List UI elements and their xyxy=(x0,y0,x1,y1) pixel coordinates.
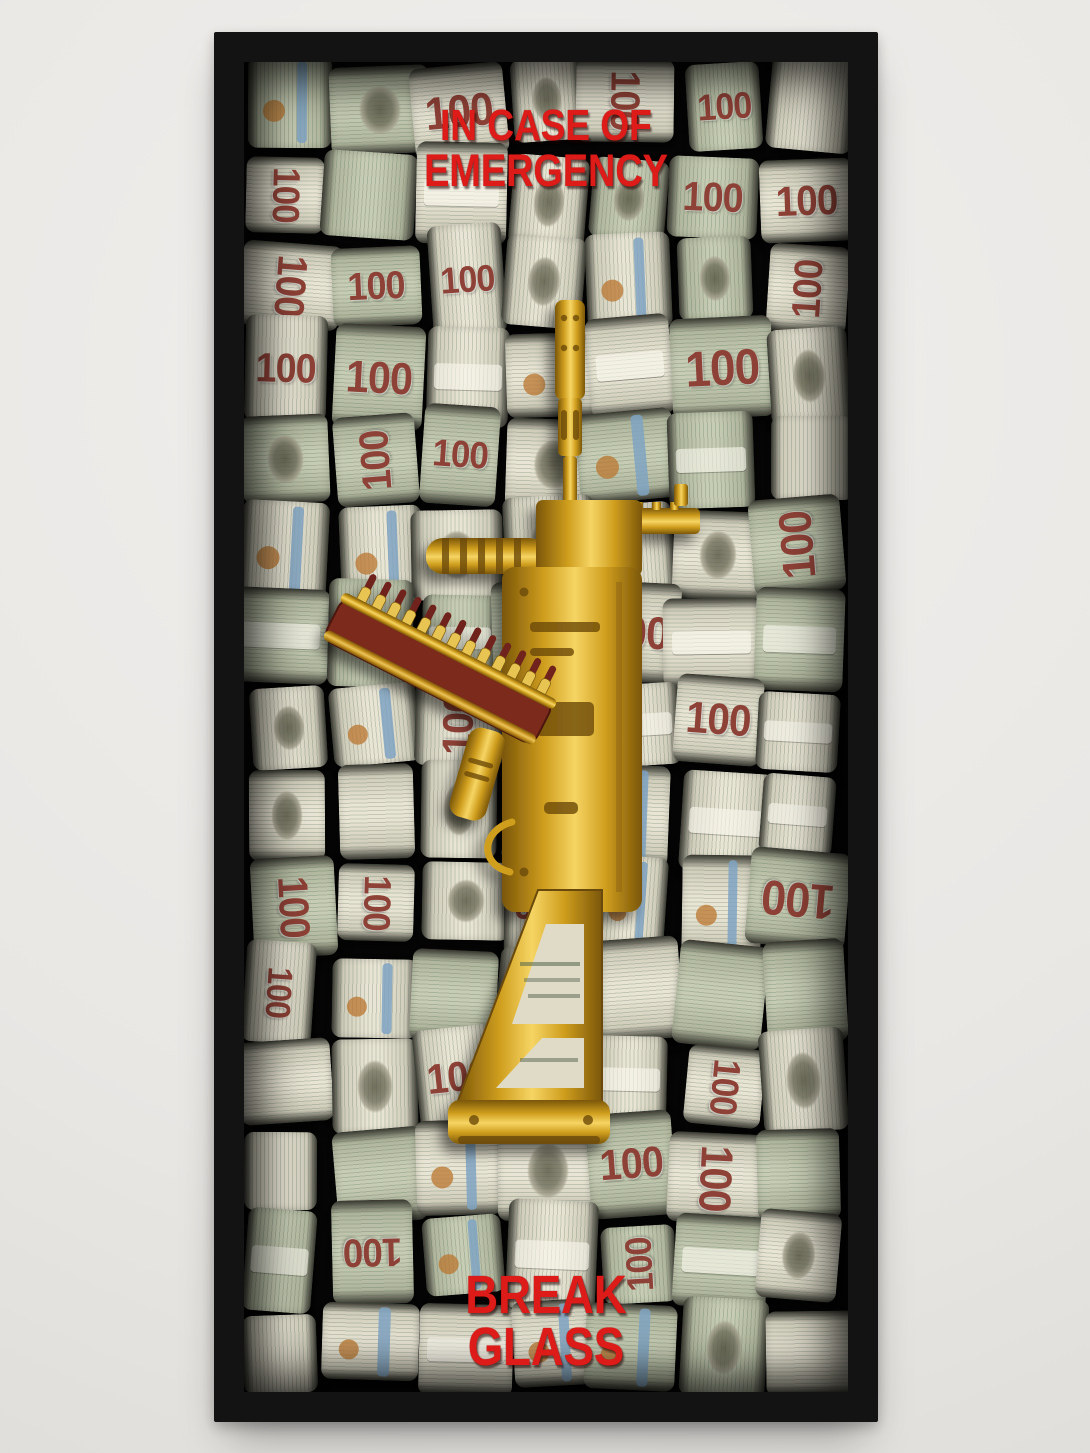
artwork-canvas: 1001001001001001001001001001001001001001… xyxy=(244,62,848,1392)
caption-top-line2-text: EMERGENCY xyxy=(424,148,668,193)
shadowbox-frame: 1001001001001001001001001001001001001001… xyxy=(214,32,878,1422)
caption-bottom-line2-text: GLASS xyxy=(468,1320,624,1374)
gold-rifle xyxy=(244,62,848,1392)
caption-top-line2: EMERGENCY xyxy=(244,148,848,193)
rifle-stock xyxy=(448,890,610,1144)
caption-top-line1-text: IN CASE OF xyxy=(440,104,652,148)
rifle-grip xyxy=(447,725,509,824)
caption-bottom-line1: BREAK xyxy=(244,1268,848,1322)
caption-bottom-line2: GLASS xyxy=(244,1320,848,1374)
caption-top-line1: IN CASE OF xyxy=(244,104,848,148)
caption-bottom-line1-text: BREAK xyxy=(465,1268,626,1322)
